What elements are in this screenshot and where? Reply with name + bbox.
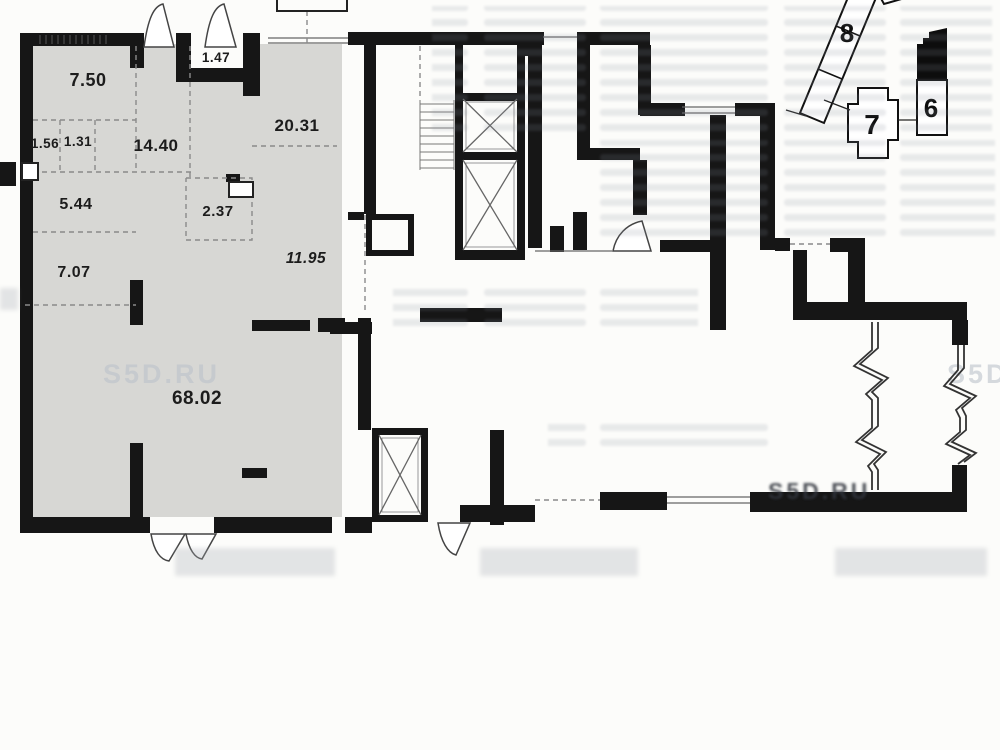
bleed-through-text bbox=[393, 6, 995, 452]
elevator-shaft-icon bbox=[463, 160, 517, 250]
room-area-label: 1.47 bbox=[202, 50, 230, 65]
wall-niche-left bbox=[22, 163, 38, 180]
elevator-shaft-icon bbox=[379, 435, 421, 515]
room-area-label: 1.56 bbox=[31, 136, 59, 151]
room-area-label: 7.50 bbox=[69, 70, 106, 90]
room-area-label: 14.40 bbox=[133, 136, 178, 155]
watermark-text: S5D.RU bbox=[103, 359, 220, 389]
legend-box-cutoff bbox=[277, 0, 347, 11]
door-swing-icon bbox=[205, 4, 236, 47]
room-area-label: 1.31 bbox=[64, 134, 92, 149]
room-area-label: 68.02 bbox=[172, 388, 222, 409]
door-swing-icon bbox=[438, 523, 470, 555]
room-area-label: 11.95 bbox=[286, 250, 326, 267]
building-outline-8-upper bbox=[878, 0, 912, 4]
floor-plan-canvas: S5D.RU S5D.RU 7.50 1.47 20.31 bbox=[0, 0, 1000, 750]
room-area-label: 20.31 bbox=[274, 116, 319, 135]
wall-niche-center bbox=[229, 182, 253, 197]
room-area-label: 2.37 bbox=[202, 203, 233, 220]
room-area-label: 5.44 bbox=[59, 196, 92, 213]
scanned-floor-plan-sheet: S5D.RU S5D.RU 7.50 1.47 20.31 bbox=[0, 0, 1000, 750]
room-area-label: 7.07 bbox=[57, 264, 90, 281]
wall-break-zigzag-icon bbox=[854, 322, 888, 490]
door-swing-icon bbox=[144, 4, 174, 47]
watermark-text-dark: S5D.RU bbox=[768, 478, 870, 504]
